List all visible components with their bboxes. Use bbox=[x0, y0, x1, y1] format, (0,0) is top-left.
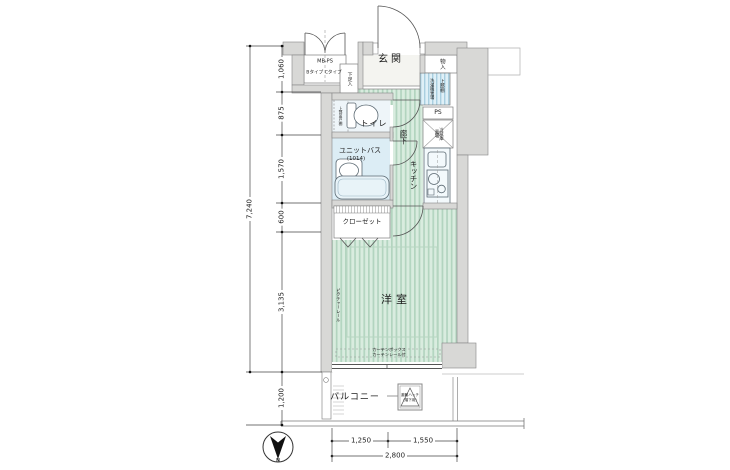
bathtub-icon bbox=[335, 176, 389, 199]
label-curtain-rail: カーテンレール付 bbox=[372, 353, 406, 357]
label-toilet: トイレ bbox=[361, 120, 388, 128]
label-escape-hatch-sub: (階下用) bbox=[403, 399, 417, 403]
dim-600: 600 bbox=[278, 208, 285, 225]
dim-3135: 3,135 bbox=[278, 290, 285, 314]
wall bbox=[321, 93, 332, 372]
label-mb-ps: MB-PS bbox=[317, 59, 333, 64]
label-fridge: 冷蔵庫置場 bbox=[434, 127, 443, 142]
dim-1200: 1,200 bbox=[278, 386, 285, 410]
label-washer-shelf: 上部棚 bbox=[439, 79, 444, 93]
label-toilet-cabinet: 上部吊戸棚 bbox=[339, 107, 343, 126]
wall bbox=[332, 93, 393, 100]
label-western-room: 洋室 bbox=[381, 294, 411, 306]
label-kitchen: キッチン bbox=[409, 160, 417, 190]
label-ps: PS bbox=[434, 110, 441, 116]
label-picture-rail: ピクチャーレール bbox=[336, 288, 340, 322]
wall bbox=[363, 42, 373, 55]
compass-north-label: N bbox=[276, 460, 280, 465]
mb-door-swing bbox=[305, 33, 325, 53]
wall bbox=[292, 55, 304, 85]
dim-875: 875 bbox=[278, 104, 285, 121]
closet-shelf-hatch bbox=[334, 206, 390, 213]
dim-1550: 1,550 bbox=[411, 437, 435, 444]
entry-door-swing bbox=[378, 6, 420, 48]
label-unit-bath: ユニットバス bbox=[339, 147, 381, 154]
dim-1060: 1,060 bbox=[278, 57, 285, 81]
hall-kitchen-floor bbox=[393, 105, 423, 205]
wall bbox=[390, 165, 393, 200]
door-jamb bbox=[373, 43, 378, 54]
label-storage: 物入 bbox=[438, 59, 444, 70]
floor-plan-page: MB-PS Bタイプ Cタイプ 玄関 物入 下足入 上部棚 洗濯機置場 PS 冷… bbox=[0, 0, 730, 470]
wall bbox=[442, 343, 476, 368]
corridor-outline bbox=[488, 48, 520, 75]
label-unit-bath-size: (1014) bbox=[347, 157, 365, 163]
compass bbox=[263, 432, 293, 462]
mb-door-swing bbox=[325, 33, 345, 53]
wall bbox=[358, 42, 363, 89]
label-balcony: バルコニー bbox=[330, 393, 380, 402]
wall bbox=[390, 127, 393, 141]
door-jamb bbox=[420, 43, 425, 54]
label-shoe-box: 下足入 bbox=[346, 72, 351, 86]
wall bbox=[457, 155, 468, 343]
wall bbox=[423, 203, 457, 209]
label-washer: 洗濯機置場 bbox=[430, 79, 434, 100]
wall bbox=[332, 132, 393, 138]
wall bbox=[420, 55, 425, 73]
dim-1570: 1,570 bbox=[278, 157, 285, 181]
wall bbox=[283, 42, 304, 55]
label-closet: クローゼット bbox=[343, 219, 382, 226]
wall bbox=[457, 48, 488, 155]
label-genkan: 玄関 bbox=[378, 55, 404, 66]
washer-space-box bbox=[420, 73, 450, 105]
label-mb-types: Bタイプ Cタイプ bbox=[306, 72, 341, 77]
room-entry-floor bbox=[390, 205, 457, 240]
dim-1250: 1,250 bbox=[349, 437, 373, 444]
dim-2800-total: 2,800 bbox=[383, 452, 407, 459]
label-hallway: 廊下 bbox=[399, 130, 407, 145]
dim-7240-total: 7,240 bbox=[246, 197, 253, 221]
